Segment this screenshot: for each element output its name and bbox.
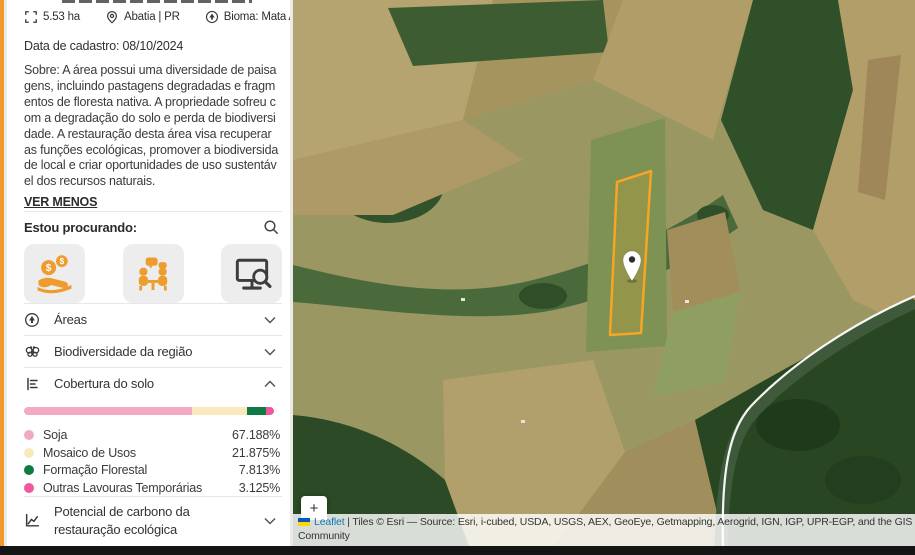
satellite-map[interactable]: + Leaflet | Tiles © Esri — Source: Esri,… [293,0,915,546]
accordion-biodiversity[interactable]: Biodiversidade da região [24,336,282,367]
searching-for-title: Estou procurando: [24,220,137,235]
divider [24,211,282,212]
biome-tree-icon [205,10,219,24]
chevron-up-icon [264,380,276,388]
legend-dot [24,430,34,440]
accordion-carbon-potential[interactable]: Potencial de carbono da restauração ecol… [24,503,282,538]
leaflet-link[interactable]: Leaflet [314,516,344,528]
butterfly-icon [24,343,41,360]
bar-segment-2 [247,407,267,415]
chevron-down-icon [264,348,276,356]
left-accent-strip [0,0,4,546]
attribution-text: | Tiles © Esri — Source: Esri, i-cubed, … [344,516,915,528]
accordion-land-cover[interactable]: Cobertura do solo [24,368,282,399]
monitor-magnifier-icon [230,252,274,296]
search-icon[interactable] [262,218,280,236]
see-less-link[interactable]: VER MENOS [24,195,97,209]
svg-text:$: $ [59,257,64,266]
searching-options-row: $ $ [24,244,282,303]
searching-for-header: Estou procurando: [24,219,282,235]
monitoring-button[interactable] [221,244,282,303]
about-text: Sobre: A área possui uma diversidade de … [24,63,279,190]
ukraine-flag-icon [298,518,310,526]
area-value: 5.53 ha [43,11,80,23]
biome-value: Bioma: Mata Atlântica [224,11,290,23]
bar-segment-0 [24,407,192,415]
accordion-biodiversity-label: Biodiversidade da região [54,344,251,359]
location-value: Abatia | PR [124,11,180,23]
areas-tree-icon [24,311,41,328]
accordion-areas[interactable]: Áreas [24,304,282,335]
accordion-areas-label: Áreas [54,312,251,327]
location-pin-icon [105,10,119,24]
clipped-heading-remnant [62,0,252,3]
svg-text:$: $ [45,263,51,274]
legend-row-formacao: Formação Florestal 7.813% [24,461,282,479]
legend-dot [24,465,34,475]
legend-dot [24,448,34,458]
property-biome: Bioma: Mata Atlântica [205,10,290,24]
people-meeting-icon [131,252,175,296]
chevron-down-icon [264,517,276,525]
legend-row-outras: Outras Lavouras Temporárias 3.125% [24,479,282,497]
accordion-land-cover-label: Cobertura do solo [54,376,251,391]
legend-row-mosaico: Mosaico de Usos 21.875% [24,444,282,462]
hand-coins-icon: $ $ [33,252,77,296]
soil-layers-icon [24,375,41,392]
partnership-meeting-button[interactable] [123,244,184,303]
map-attribution: Leaflet | Tiles © Esri — Source: Esri, i… [293,514,915,546]
land-cover-bar [24,407,274,415]
area-crop-icon [24,10,38,24]
property-meta-row: 5.53 ha Abatia | PR Bioma: Mata Atlântic… [24,9,282,25]
attribution-line2: Community [298,530,350,542]
property-sidebar: 5.53 ha Abatia | PR Bioma: Mata Atlântic… [7,0,290,546]
land-cover-legend: Soja 67.188% Mosaico de Usos 21.875% For… [24,426,282,496]
financial-support-button[interactable]: $ $ [24,244,85,303]
attribution-line1: Leaflet | Tiles © Esri — Source: Esri, i… [298,516,915,530]
divider [24,496,282,497]
property-area: 5.53 ha [24,10,80,24]
bottom-black-bar [0,546,915,555]
bar-segment-3 [266,407,274,415]
legend-row-soja: Soja 67.188% [24,426,282,444]
registration-date: Data de cadastro: 08/10/2024 [24,39,282,53]
chart-icon [24,512,41,529]
legend-dot [24,483,34,493]
chevron-down-icon [264,316,276,324]
accordion-carbon-label: Potencial de carbono da restauração ecol… [54,503,251,538]
satellite-imagery [293,0,915,546]
bar-segment-1 [192,407,247,415]
property-location: Abatia | PR [105,10,180,24]
